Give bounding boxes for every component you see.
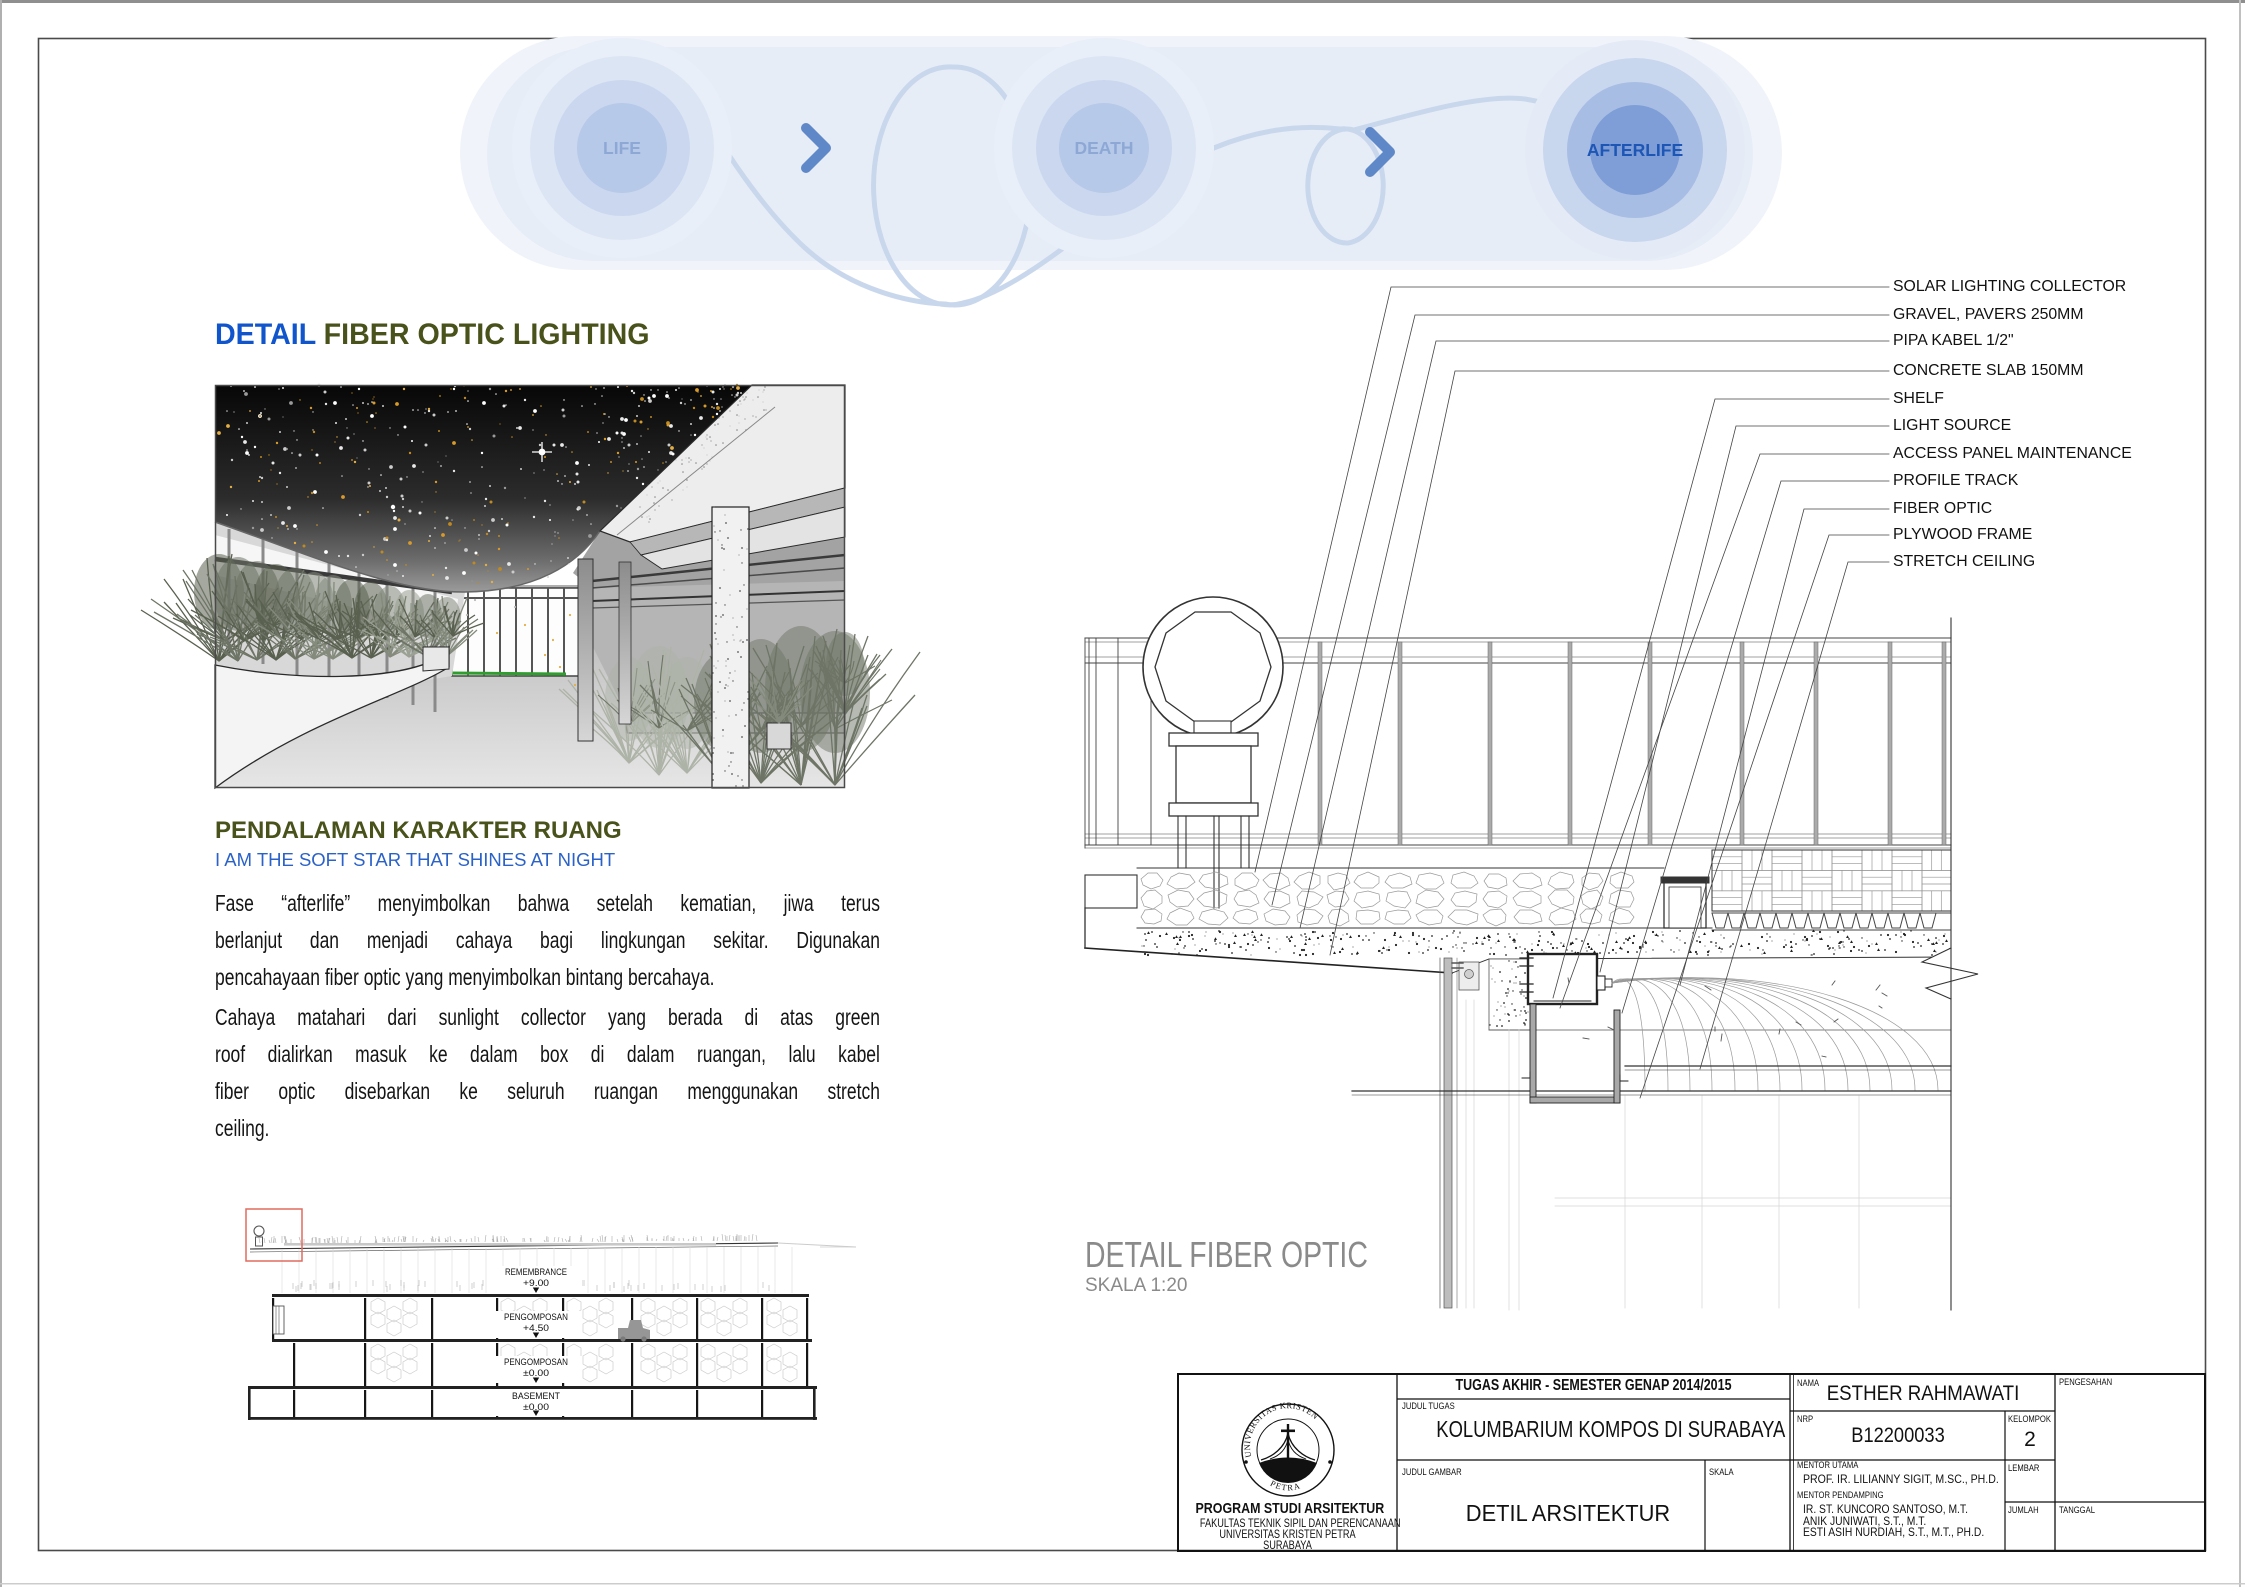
svg-text:±0.00: ±0.00 bbox=[523, 1368, 549, 1378]
svg-text:AFTERLIFE: AFTERLIFE bbox=[1587, 140, 1683, 160]
svg-text:REMEMBRANCE: REMEMBRANCE bbox=[505, 1267, 567, 1277]
svg-text:DEATH: DEATH bbox=[1075, 138, 1134, 158]
svg-text:PENGOMPOSAN: PENGOMPOSAN bbox=[504, 1357, 568, 1367]
svg-text:BASEMENT: BASEMENT bbox=[512, 1391, 561, 1401]
svg-text:+9.00: +9.00 bbox=[523, 1278, 549, 1288]
svg-text:+4.50: +4.50 bbox=[523, 1323, 549, 1333]
svg-text:PENGOMPOSAN: PENGOMPOSAN bbox=[504, 1312, 568, 1322]
svg-text:LIFE: LIFE bbox=[603, 138, 641, 158]
